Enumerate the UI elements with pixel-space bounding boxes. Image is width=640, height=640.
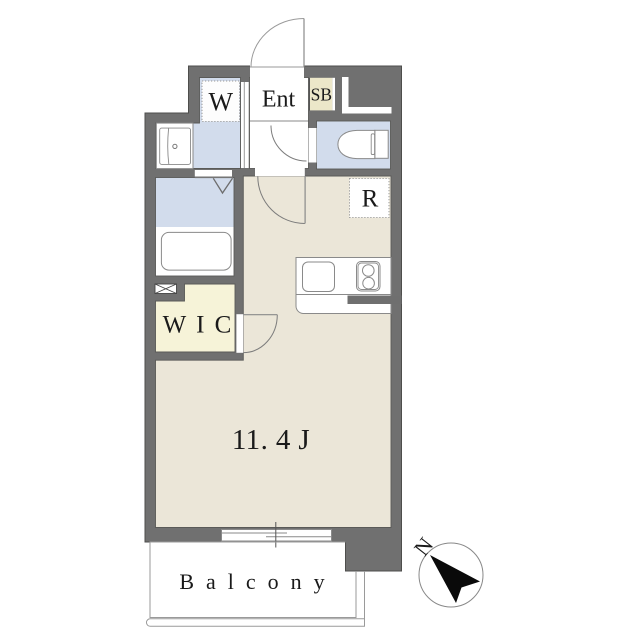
svg-text:W I C: W I C (163, 312, 234, 339)
svg-text:SB: SB (311, 85, 332, 105)
svg-text:W: W (209, 88, 234, 117)
svg-text:11. 4 J: 11. 4 J (232, 424, 310, 456)
svg-text:Ent: Ent (262, 87, 296, 113)
svg-text:R: R (362, 186, 379, 213)
svg-text:Balcony: Balcony (179, 569, 336, 594)
